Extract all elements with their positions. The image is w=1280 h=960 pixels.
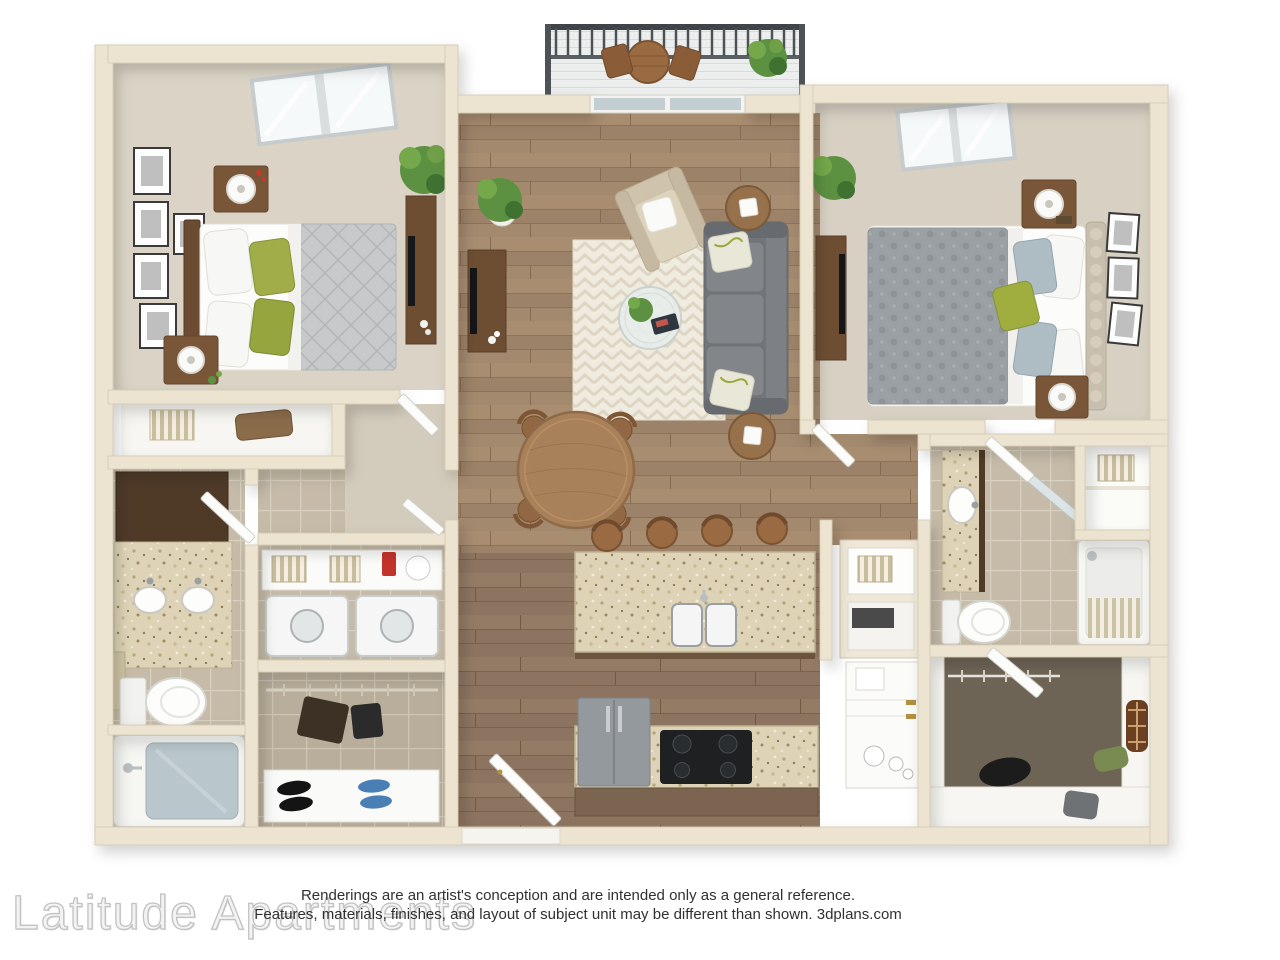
bedroom1-tv-console xyxy=(406,196,436,344)
folded-towels xyxy=(858,556,892,582)
green-accent-pillow xyxy=(248,237,295,296)
kitchen-sink-right xyxy=(706,604,736,646)
wall-kitchen-right xyxy=(820,520,832,660)
closet-bag xyxy=(235,409,293,441)
tv-screen xyxy=(839,254,845,334)
balcony-sliding-door xyxy=(590,95,745,113)
balcony xyxy=(545,24,805,95)
gold-handle xyxy=(906,700,916,705)
bedroom2-plant xyxy=(812,156,856,200)
outer-wall-top-left xyxy=(108,45,458,63)
closet-towels xyxy=(150,410,194,440)
disclaimer-line-2: Features, materials, finishes, and layou… xyxy=(228,905,928,924)
cooktop xyxy=(660,730,752,784)
wall-bath2-top xyxy=(930,434,1168,446)
wall-laundry-bottom xyxy=(258,660,445,672)
disclaimer-line-1: Renderings are an artist's conception an… xyxy=(228,886,928,905)
living-top-wall-left xyxy=(458,95,590,113)
floor-plan-svg xyxy=(0,0,1280,960)
outer-wall-bottom xyxy=(95,827,1168,845)
bedroom2-nightstand-top xyxy=(1022,180,1076,228)
side-table-bottom xyxy=(729,413,775,459)
bedroom1-nightstand-bottom xyxy=(164,336,222,384)
bathroom1 xyxy=(113,472,245,827)
wall-living-bed2 xyxy=(800,85,813,434)
bath1-sink-left xyxy=(134,587,166,613)
wall-entry-divider xyxy=(445,520,458,827)
green-accent-pillow xyxy=(249,298,295,356)
wall-bath1-right xyxy=(245,545,258,827)
gray-bag xyxy=(1062,790,1099,820)
hall-linen-cubbies xyxy=(840,540,922,658)
bedroom1-nightstand-top xyxy=(214,166,268,212)
linen-closet xyxy=(1085,446,1150,530)
wall-closet1-bottom xyxy=(108,456,345,469)
bedroom2-tv-console xyxy=(816,236,846,360)
hallway-left-floor xyxy=(345,404,458,534)
closet-shelf-left xyxy=(930,657,944,787)
kitchen-island xyxy=(575,552,815,659)
wall-linen-left xyxy=(1075,446,1085,540)
coffee-table xyxy=(619,287,681,349)
sofa-pillow-bottom xyxy=(709,368,756,412)
outer-wall-right xyxy=(1150,85,1168,845)
outer-wall-top-right xyxy=(800,85,1168,103)
wall-bed2-bottom xyxy=(1055,420,1168,434)
wall-bed1-living xyxy=(445,45,458,470)
wall-linen-bottom xyxy=(1075,530,1150,540)
bath1-sink-right xyxy=(182,587,214,613)
patterned-duffel xyxy=(1126,700,1148,752)
gold-handle xyxy=(906,714,916,719)
bath2-toilet xyxy=(942,600,1010,644)
disclaimer: Renderings are an artist's conception an… xyxy=(228,886,928,924)
tv-screen xyxy=(470,268,477,334)
shoe-shelf xyxy=(264,770,439,822)
wall-bath2-bottom xyxy=(930,645,1168,657)
laundry-towels xyxy=(272,556,306,582)
wall-tub-divider xyxy=(108,725,245,735)
bathtub xyxy=(113,735,245,827)
wall-center-right xyxy=(918,520,930,827)
laundry-basin xyxy=(406,556,430,580)
kitchen-tall-cabinet xyxy=(846,662,920,788)
bedroom2-nightstand-bottom xyxy=(1036,376,1088,418)
dining-set xyxy=(515,412,635,530)
tv-screen xyxy=(408,236,415,306)
screenshot-canvas: Latitude Apartments Renderings are an ar… xyxy=(0,0,1280,960)
dining-table xyxy=(518,412,634,528)
bath1-vanity-counter xyxy=(114,542,232,668)
balcony-bistro-table xyxy=(627,41,669,83)
kitchen-sink-left xyxy=(672,604,702,646)
bedroom2-skylight xyxy=(897,100,1014,169)
storage-item xyxy=(852,608,894,628)
wall-laundry-top xyxy=(258,533,445,545)
wall-bed1-bottom xyxy=(108,390,400,404)
closet-bag-black xyxy=(350,703,383,740)
red-canister xyxy=(382,552,396,576)
bath1-toilet xyxy=(120,678,206,726)
sofa-pillow-top xyxy=(707,231,753,273)
shower-mat xyxy=(1088,598,1140,638)
shower-head xyxy=(1087,551,1097,561)
living-tv-console xyxy=(468,250,506,352)
closet-shelf-bottom xyxy=(930,787,1150,827)
side-table-top xyxy=(726,186,770,230)
floor-plan-rendering xyxy=(0,0,1280,960)
sofa xyxy=(704,222,788,414)
laundry-towels xyxy=(330,556,360,582)
refrigerator-gray xyxy=(578,698,650,786)
door-knob xyxy=(498,770,503,775)
bedroom2-wall-art xyxy=(1107,213,1142,345)
linen-towels xyxy=(1098,455,1134,481)
